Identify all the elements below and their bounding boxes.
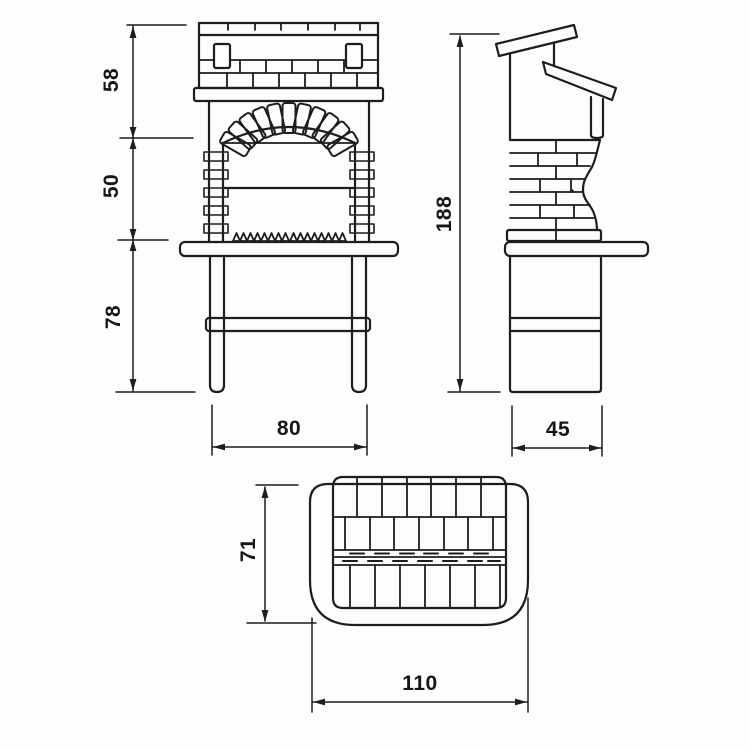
front-view	[180, 23, 398, 392]
front-side-columns	[204, 143, 374, 242]
front-firebox-walls	[209, 101, 369, 242]
dim-label-front-middle-height: 50	[100, 174, 124, 198]
side-hood-lip	[591, 97, 603, 138]
front-table-top	[180, 242, 398, 256]
side-base-band	[510, 318, 601, 331]
side-brick-wall	[507, 140, 601, 241]
side-table-top	[505, 242, 648, 256]
dim-label-side-overall-height: 188	[433, 196, 457, 233]
top-slab-outline	[310, 484, 528, 625]
side-view	[496, 25, 648, 392]
dim-label-front-width: 80	[277, 417, 301, 441]
technical-drawing-canvas: 58 50 78 80 188 45 71 110	[0, 0, 750, 750]
front-right-leg	[352, 256, 366, 392]
front-left-leg	[210, 256, 224, 392]
side-hood-slab	[543, 62, 616, 100]
top-brick-courses	[333, 477, 506, 608]
dim-label-front-lower-height: 78	[102, 305, 126, 329]
dim-label-side-base-depth: 45	[546, 418, 570, 442]
side-base	[510, 256, 601, 392]
front-crossbar	[206, 318, 370, 331]
dim-front-vertical	[116, 25, 195, 392]
front-hood	[194, 23, 383, 101]
front-grate-serration	[233, 233, 346, 241]
side-cap-slab	[496, 25, 577, 56]
top-view	[310, 477, 528, 625]
dim-label-top-depth: 71	[237, 538, 261, 562]
front-mantel-shelf	[194, 88, 383, 101]
dim-label-top-width: 110	[402, 672, 437, 696]
drawing-linework	[0, 0, 750, 750]
dim-label-front-upper-height: 58	[100, 68, 124, 92]
front-arch-bricks	[219, 103, 359, 157]
